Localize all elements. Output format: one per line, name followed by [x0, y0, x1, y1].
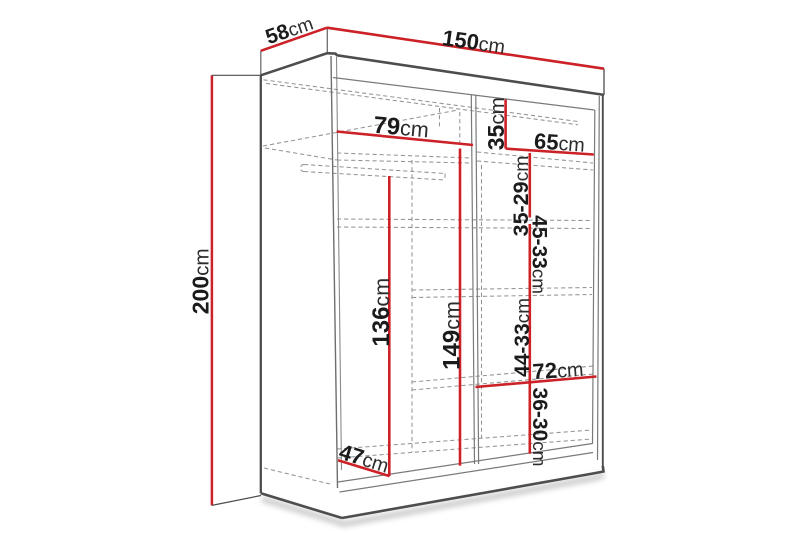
- svg-text:79cm: 79cm: [372, 112, 430, 144]
- svg-text:149cm: 149cm: [439, 301, 466, 370]
- svg-text:36-30cm: 36-30cm: [528, 388, 551, 467]
- svg-text:35cm: 35cm: [483, 97, 509, 150]
- svg-text:45-33cm: 45-33cm: [528, 215, 551, 294]
- svg-text:72cm: 72cm: [532, 356, 584, 384]
- svg-text:136cm: 136cm: [368, 278, 395, 347]
- svg-text:44-33cm: 44-33cm: [511, 298, 534, 377]
- svg-text:200cm: 200cm: [188, 248, 214, 314]
